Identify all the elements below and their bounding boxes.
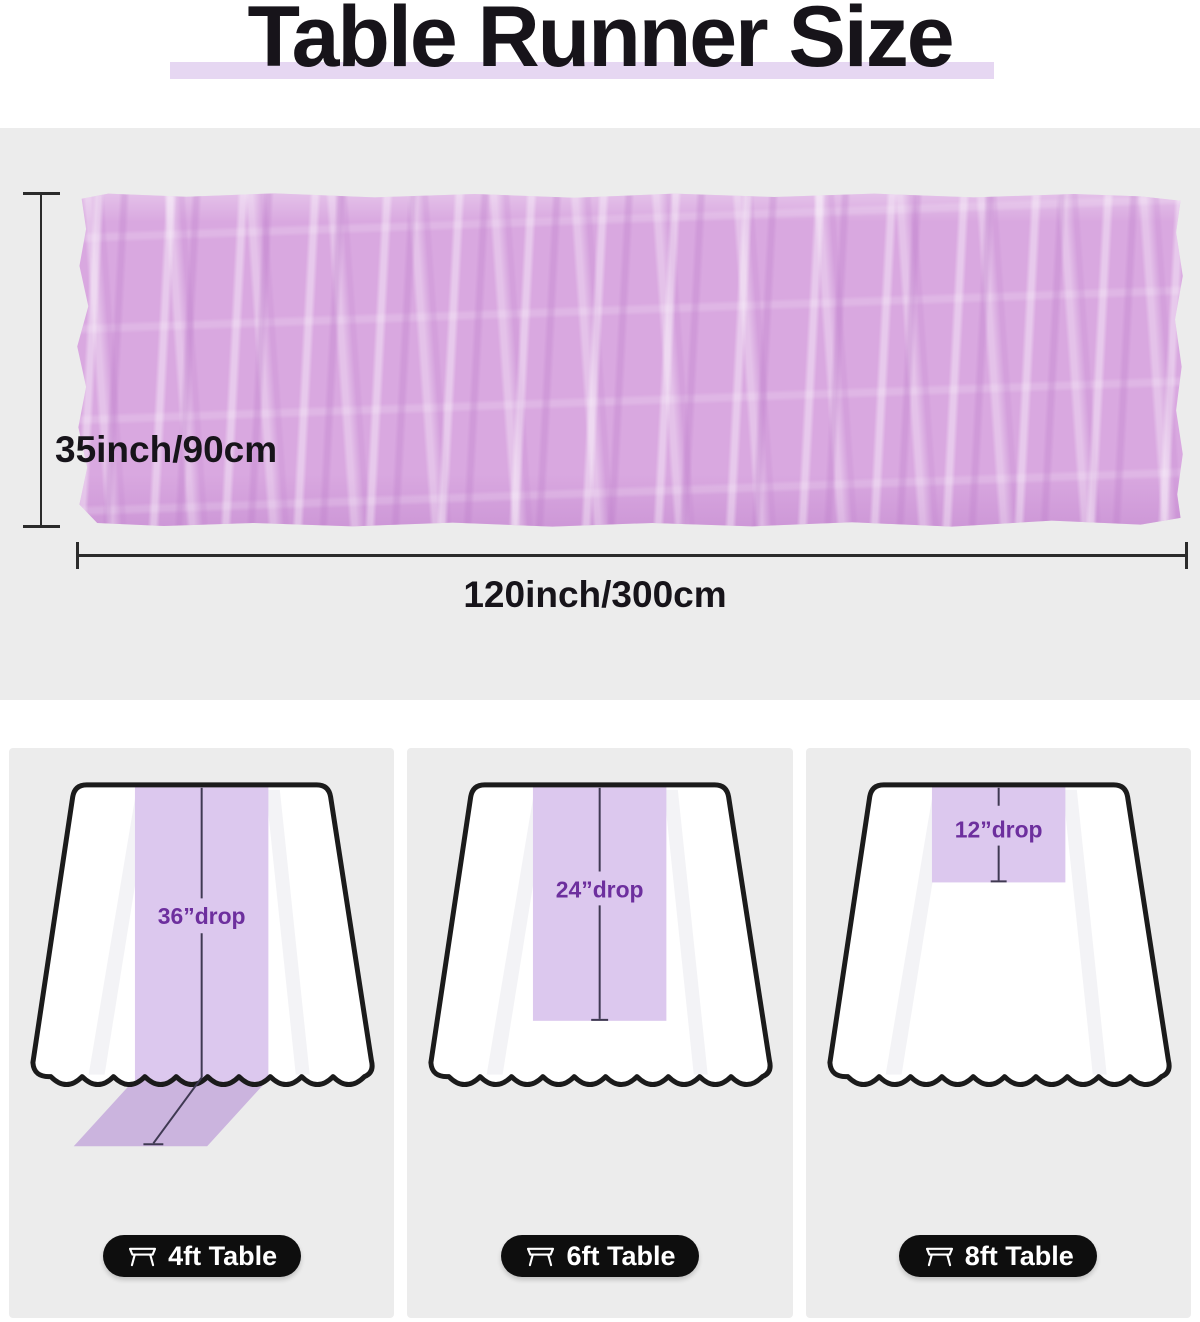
table-size-label: 6ft Table	[566, 1243, 675, 1270]
table-size-badge-4ft: 4ft Table	[103, 1235, 301, 1277]
height-dimension-cap-top	[23, 192, 60, 195]
table-icon	[524, 1244, 557, 1269]
drop-label: 24”drop	[556, 876, 644, 902]
panel-4ft-table: 36”drop 4ft Table	[9, 748, 394, 1318]
table-diagram-6ft: 24”drop	[407, 748, 792, 1218]
panel-6ft-table: 24”drop 6ft Table	[407, 748, 792, 1318]
runner-overhang	[74, 1079, 269, 1147]
table-size-label: 8ft Table	[965, 1243, 1074, 1270]
table-diagram-4ft: 36”drop	[9, 748, 394, 1218]
table-icon	[126, 1244, 159, 1269]
title-section: Table Runner Size	[0, 0, 1200, 128]
table-icon	[923, 1244, 956, 1269]
height-dimension-label: 35inch/90cm	[55, 431, 277, 468]
width-dimension-cap-right	[1185, 542, 1188, 569]
infographic-canvas: Table Runner Size 35inch/90cm 120inch/30…	[0, 0, 1200, 1322]
height-dimension-cap-bottom	[23, 525, 60, 528]
panel-8ft-table: 12”drop 8ft Table	[806, 748, 1191, 1318]
table-size-badge-6ft: 6ft Table	[501, 1235, 699, 1277]
table-size-label: 4ft Table	[168, 1243, 277, 1270]
table-diagram-8ft: 12”drop	[806, 748, 1191, 1218]
drop-label: 12”drop	[954, 817, 1042, 843]
runner-fabric-photo	[75, 192, 1185, 528]
drop-label: 36”drop	[158, 903, 246, 929]
height-dimension-line	[40, 193, 42, 527]
table-size-badge-8ft: 8ft Table	[899, 1235, 1097, 1277]
table-panels-row: 36”drop 4ft Table	[0, 748, 1200, 1318]
width-dimension-cap-left	[76, 542, 79, 569]
page-title: Table Runner Size	[0, 0, 1200, 80]
width-dimension-line	[76, 554, 1188, 557]
runner-size-panel: 35inch/90cm 120inch/300cm	[0, 128, 1200, 700]
width-dimension-label: 120inch/300cm	[0, 576, 1190, 613]
